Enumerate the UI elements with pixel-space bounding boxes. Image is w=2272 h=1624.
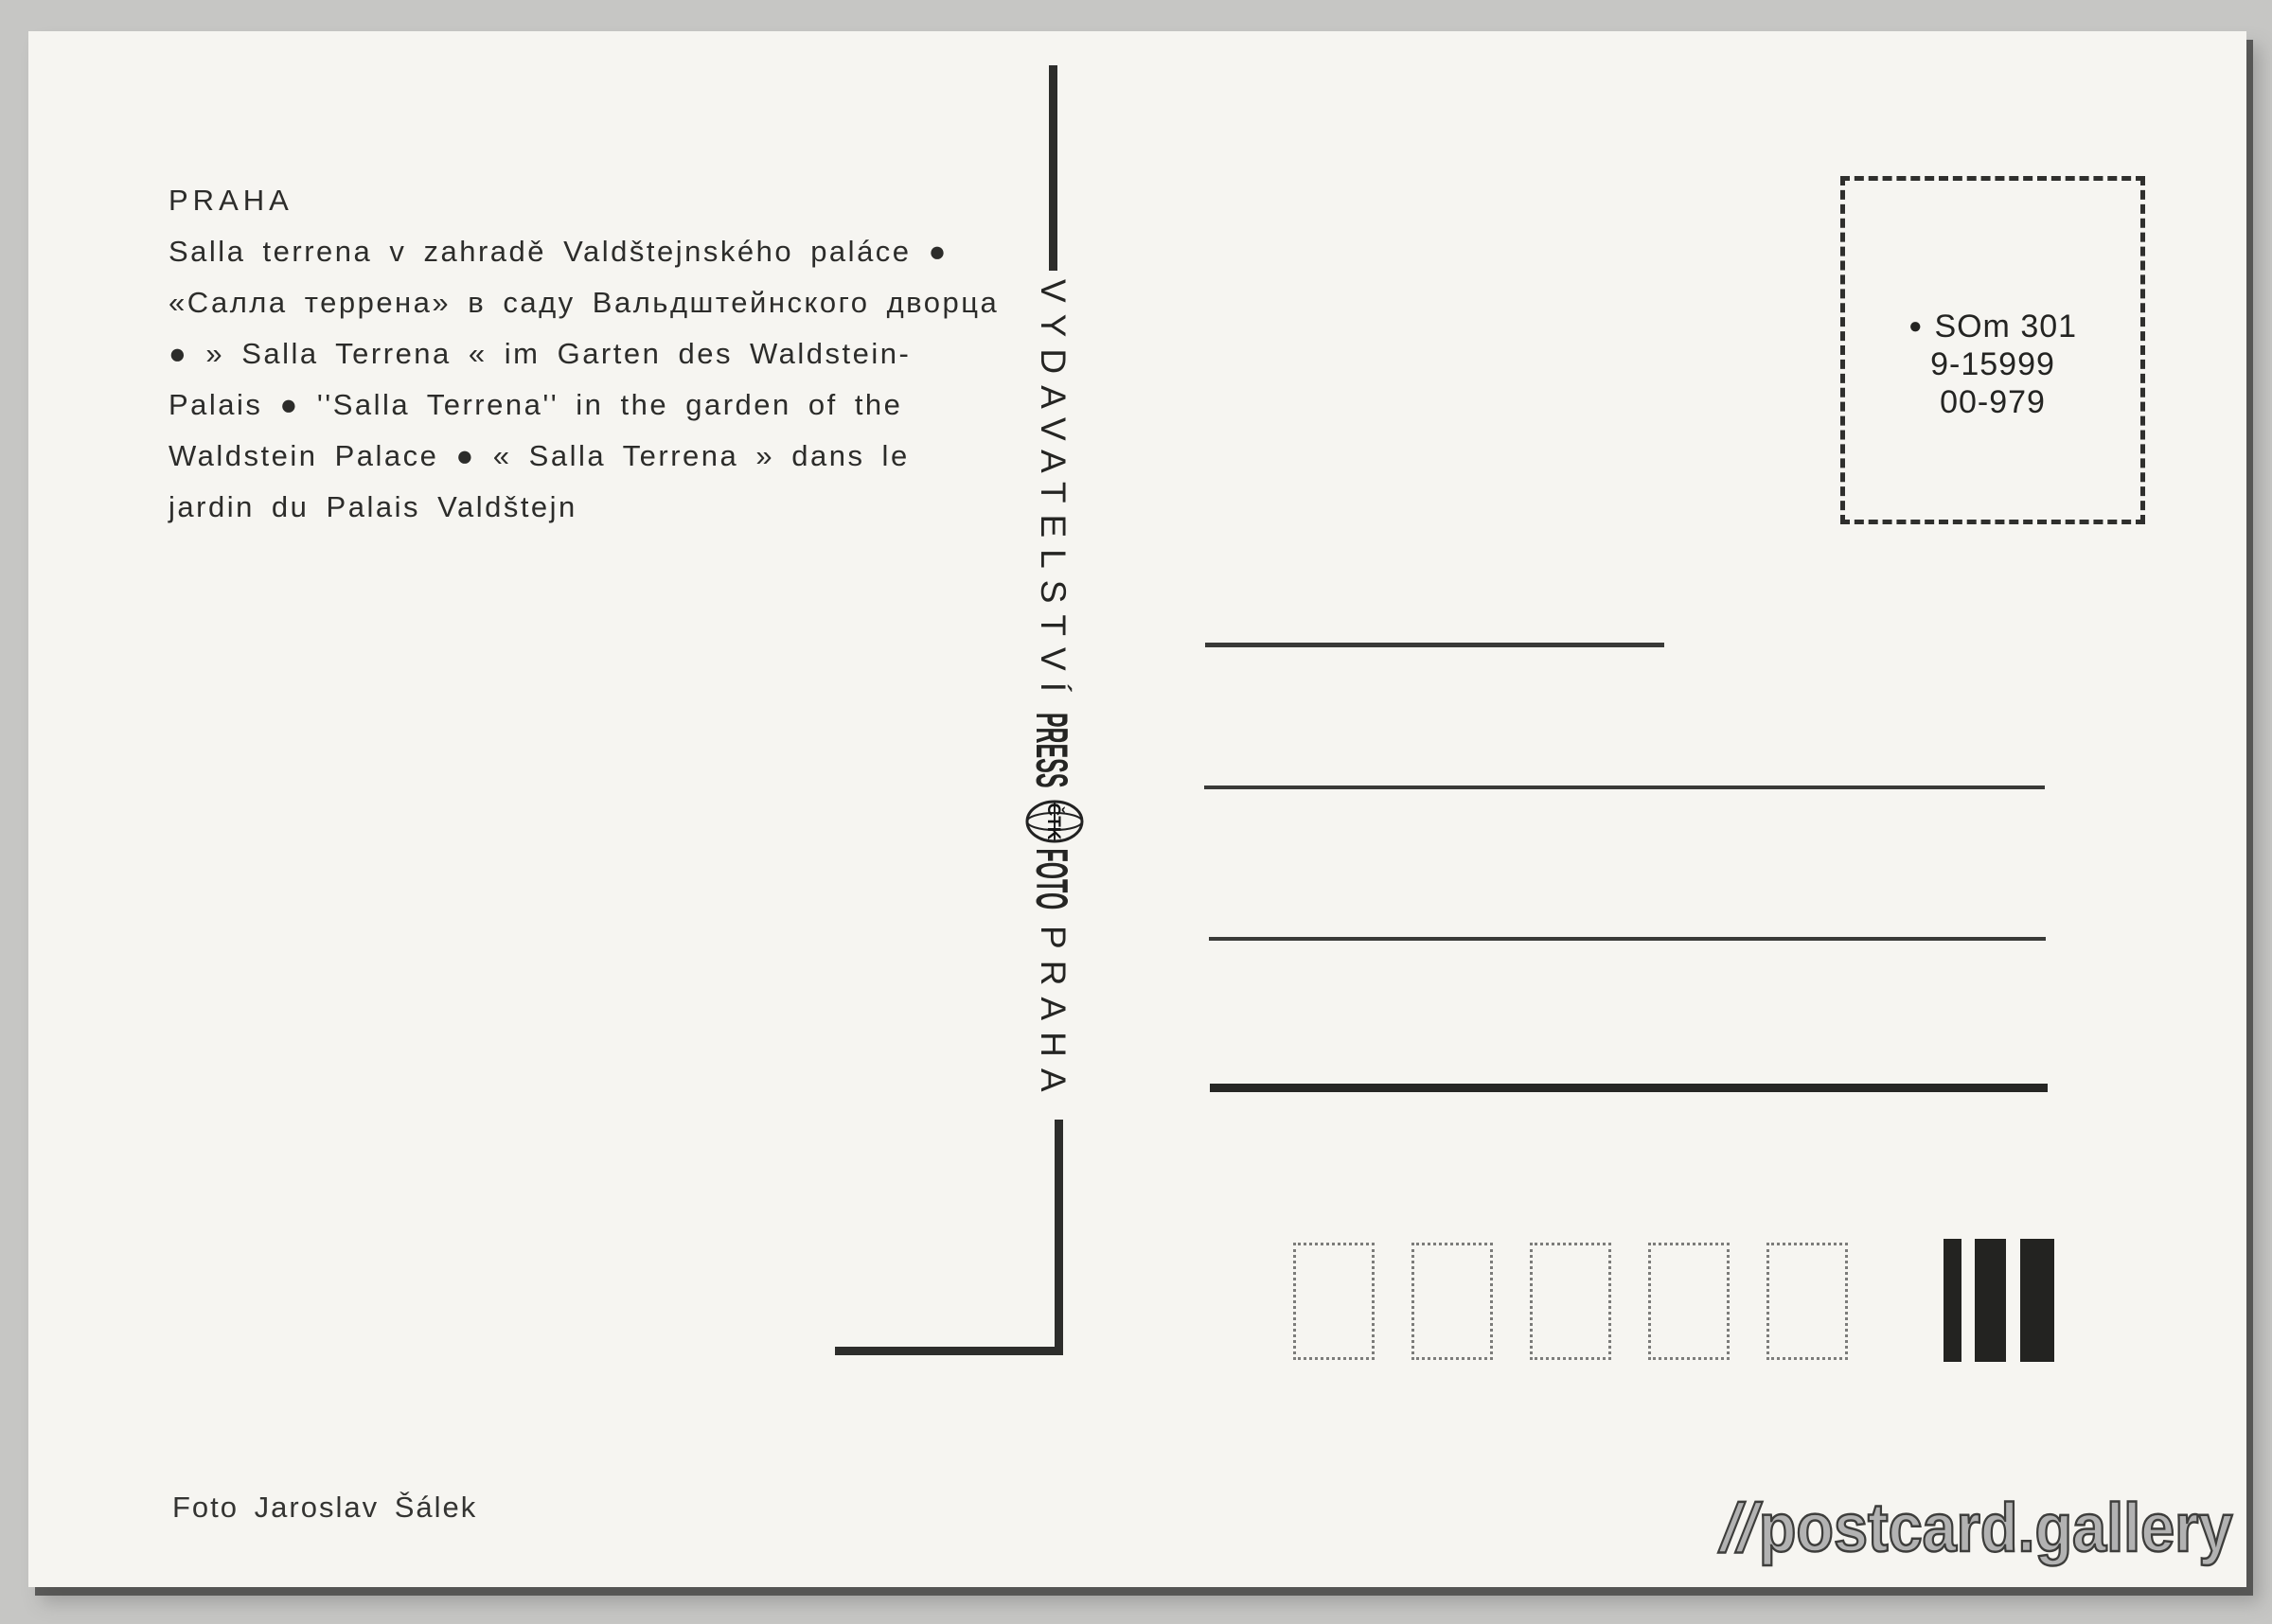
registration-bar [1944,1239,1961,1362]
caption-line-french-2: jardin du Palais Valdštejn [169,482,1021,533]
caption-line-english: Palais ● ''Salla Terrena'' in the garden… [169,380,1021,431]
divider-line-foot [835,1347,1063,1355]
address-line-1 [1205,643,1664,647]
caption-line-czech: Salla terrena v zahradě Valdštejnského p… [169,226,1021,277]
postal-code-boxes [1293,1243,1848,1360]
watermark-name: postcard.gallery [1759,1491,2233,1566]
bullet-icon: ● [1908,308,1924,345]
publisher-word-praha: PRAHA [1033,926,1073,1103]
caption-line-russian: «Салла террена» в саду Вальдштейнского д… [169,277,1021,328]
caption-line-german: ● » Salla Terrena « im Garten des Waldst… [169,328,1021,380]
publisher-word-foto: FOTO [1027,849,1079,910]
ctk-globe-icon: ČTK [1021,799,1086,844]
postal-code-box [1293,1243,1375,1360]
publisher-word-vydavatelstvi: VYDAVATELSTVÍ [1033,279,1073,703]
postal-code-box [1648,1243,1730,1360]
scanned-postcard-back: PRAHA Salla terrena v zahradě Valdštejns… [0,0,2272,1624]
divider-line-top [1049,65,1057,271]
stamp-catalog-number: 00-979 [1940,383,2046,421]
stamp-series-number: SOm 301 [1934,308,2077,345]
address-line-2 [1204,786,2045,789]
caption-line-french-1: Waldstein Palace ● « Salla Terrena » dan… [169,431,1021,482]
caption-block: PRAHA Salla terrena v zahradě Valdštejns… [169,175,1021,533]
photo-credit: Foto Jaroslav Šálek [172,1491,477,1525]
address-line-4 [1210,1084,2048,1092]
address-line-3 [1209,937,2046,941]
postcard-title: PRAHA [169,175,1021,226]
stamp-box: ● SOm 301 9-15999 00-979 [1840,176,2145,524]
registration-bar [2020,1239,2054,1362]
divider-line-bottom [1055,1120,1063,1355]
registration-bar [1975,1239,2006,1362]
publisher-word-press: PRESS [1027,713,1079,788]
postal-code-box [1766,1243,1848,1360]
gallery-watermark: //postcard.gallery [1723,1490,2232,1567]
postcard-paper: PRAHA Salla terrena v zahradě Valdštejns… [28,31,2246,1587]
stamp-order-number: 9-15999 [1930,345,2055,383]
postal-code-box [1530,1243,1611,1360]
svg-text:ČTK: ČTK [1044,803,1065,840]
stamp-code-line: ● SOm 301 [1908,308,2077,345]
postal-code-box [1411,1243,1493,1360]
publisher-spine: VYDAVATELSTVÍ PRESS ČTK FOTO PRAHA [1017,279,1089,1099]
